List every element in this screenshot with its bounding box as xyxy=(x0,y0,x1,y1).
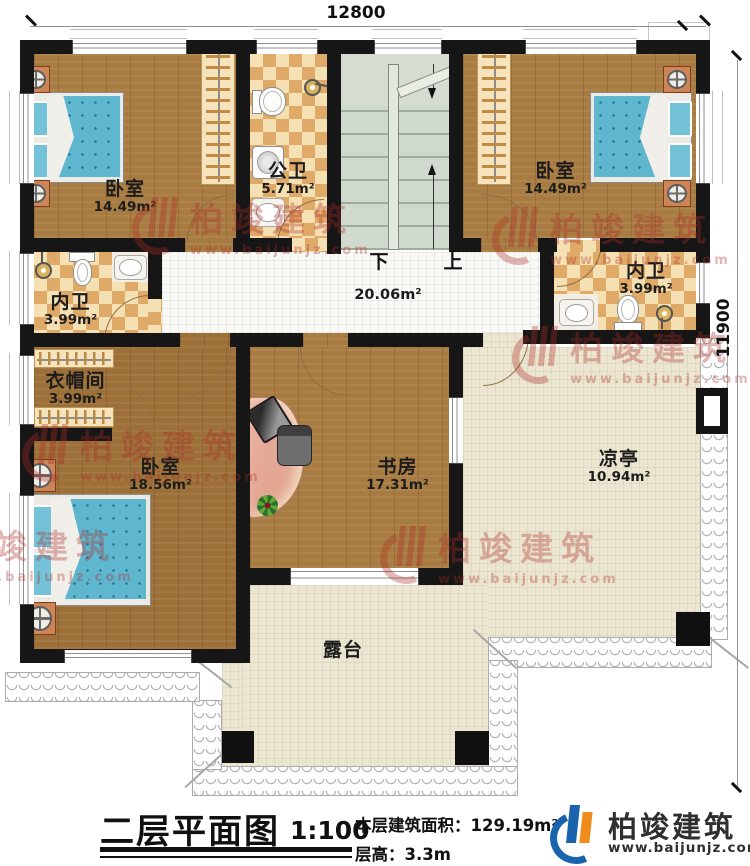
window xyxy=(374,40,442,54)
wall-int xyxy=(449,462,463,582)
terrace-column xyxy=(222,731,254,763)
room-area: 14.49m² xyxy=(508,182,603,196)
window-sill xyxy=(9,353,20,425)
room-area: 14.49m² xyxy=(75,200,175,214)
wall-int xyxy=(20,428,112,441)
window xyxy=(290,568,419,585)
terrace-floor-upper xyxy=(250,585,488,638)
wall-int xyxy=(20,238,185,252)
room-name: 卧室 xyxy=(508,162,603,182)
wall-int xyxy=(236,335,250,663)
window-sill xyxy=(9,251,20,325)
room-area: 3.99m² xyxy=(33,313,108,327)
wardrobe-bedroom-tr xyxy=(477,47,511,185)
floor-area-label: 本层建筑面积： xyxy=(355,816,471,835)
window xyxy=(20,253,34,325)
nightstand xyxy=(663,66,691,93)
wardrobe-bedroom-tl xyxy=(201,47,235,185)
company-logo-icon xyxy=(550,800,606,858)
window-sill xyxy=(9,91,20,184)
floor-plan-page: 柏竣建筑 www.baijunjz.com 柏竣建筑 www.baijunjz.… xyxy=(0,0,750,866)
cloakroom-rack-top xyxy=(34,349,114,368)
floor-height-line: 层高：3.3m xyxy=(355,841,451,865)
wall-int xyxy=(327,40,341,254)
shower-head-icon xyxy=(35,262,52,279)
label-bath-right: 内卫 3.99m² xyxy=(607,262,685,296)
window xyxy=(525,40,637,54)
shower-head-icon xyxy=(304,79,321,96)
room-name: 公卫 xyxy=(248,162,328,182)
stair-label-up: 上 xyxy=(440,247,466,274)
wall-int xyxy=(148,252,162,299)
room-area: 10.94m² xyxy=(558,470,680,484)
floor-area-line: 本层建筑面积：129.19m² xyxy=(355,812,559,836)
dimension-line-right xyxy=(737,60,738,788)
label-bedroom-bl: 卧室 18.56m² xyxy=(113,458,208,492)
label-pavilion: 凉亭 10.94m² xyxy=(558,450,680,484)
room-name: 书房 xyxy=(350,458,445,478)
room-name: 卧室 xyxy=(75,180,175,200)
shower-head-icon xyxy=(656,305,673,322)
toilet-icon xyxy=(259,87,286,116)
stair-label-down: 下 xyxy=(366,247,392,274)
window xyxy=(20,93,34,184)
window xyxy=(256,40,318,54)
doorway-bedroom-bl xyxy=(180,333,230,347)
window xyxy=(696,93,710,184)
terrace-column xyxy=(455,731,489,765)
dimension-top-value: 12800 xyxy=(320,3,392,23)
wall-pavilion-top xyxy=(540,330,696,344)
terrace-column xyxy=(676,612,710,646)
title-underline-thin xyxy=(100,856,352,858)
wall-int xyxy=(463,333,483,347)
room-name: 内卫 xyxy=(33,293,108,313)
label-study: 书房 17.31m² xyxy=(350,458,445,492)
wall-int xyxy=(233,238,292,252)
doorway-study xyxy=(303,333,348,347)
label-bedroom-tr: 卧室 14.49m² xyxy=(508,162,603,196)
stair-arrow-line-lower xyxy=(433,175,434,249)
room-name: 凉亭 xyxy=(558,450,680,470)
title-underline-thick xyxy=(100,847,352,852)
room-name: 露台 xyxy=(297,641,389,661)
wall-int xyxy=(230,333,303,347)
room-area: 5.71m² xyxy=(248,182,328,196)
window-sill xyxy=(712,91,723,184)
window-sill xyxy=(372,29,442,39)
room-area: 3.99m² xyxy=(28,392,123,406)
window-sill xyxy=(254,29,318,39)
shower-arm xyxy=(661,318,663,329)
room-area: 3.99m² xyxy=(607,282,685,296)
window xyxy=(696,262,710,304)
window xyxy=(449,397,463,464)
sink-icon xyxy=(251,198,285,227)
nightstand xyxy=(663,180,691,207)
terrace-tile-border xyxy=(192,766,518,796)
office-chair xyxy=(277,425,312,466)
doorway-bath-left xyxy=(148,299,162,335)
dimension-tick xyxy=(25,14,37,26)
pillow xyxy=(668,143,692,179)
label-bath-left: 内卫 3.99m² xyxy=(33,293,108,327)
wall-int xyxy=(348,333,463,347)
window-sill xyxy=(9,493,20,605)
wall-int xyxy=(540,238,554,338)
pillow xyxy=(668,101,692,137)
company-website: www.baijunjz.com xyxy=(608,840,750,856)
toilet-icon xyxy=(617,295,639,324)
stair-arrow-up-icon xyxy=(428,164,436,175)
wall-int xyxy=(538,238,557,252)
plan-title: 二层平面图 xyxy=(100,804,280,853)
room-name: 内卫 xyxy=(607,262,685,282)
bed-bedroom-bl xyxy=(23,494,151,606)
sink-icon xyxy=(559,299,594,326)
label-hall-area: 20.06m² xyxy=(348,288,428,303)
label-public-bath: 公卫 5.71m² xyxy=(248,162,328,196)
stair-arrow-down-icon xyxy=(428,88,436,99)
bed-bedroom-tr xyxy=(590,92,692,183)
floor-height-label: 层高： xyxy=(355,845,405,864)
plant-icon xyxy=(257,495,278,516)
wall-int xyxy=(449,40,463,252)
wall-int xyxy=(20,333,180,347)
toilet-icon xyxy=(73,259,92,286)
room-name: 衣帽间 xyxy=(28,372,123,392)
window xyxy=(20,495,34,605)
room-area: 18.56m² xyxy=(113,478,208,492)
label-cloakroom: 衣帽间 3.99m² xyxy=(28,372,123,406)
sink-icon xyxy=(114,255,147,280)
window-sill xyxy=(70,29,187,39)
window xyxy=(64,650,192,663)
wall-int xyxy=(236,40,250,252)
wall-int xyxy=(600,238,710,252)
dimension-right-value: 11900 xyxy=(714,293,734,363)
terrace-tile-border xyxy=(700,338,728,640)
pavilion-column xyxy=(696,388,728,434)
bed-bedroom-tl xyxy=(22,92,124,183)
window-sill xyxy=(523,29,637,39)
dimension-line-top xyxy=(30,26,706,27)
floor-area-value: 129.19m² xyxy=(471,816,559,835)
room-area: 17.31m² xyxy=(350,478,445,492)
room-name: 卧室 xyxy=(113,458,208,478)
pavilion-floor xyxy=(463,347,700,638)
label-bedroom-tl: 卧室 14.49m² xyxy=(75,180,175,214)
label-terrace: 露台 xyxy=(297,641,389,661)
terrace-tile-border xyxy=(5,672,200,702)
floor-height-value: 3.3m xyxy=(405,845,451,864)
room-area: 20.06m² xyxy=(348,288,428,303)
cloakroom-rack-bottom xyxy=(34,407,114,427)
window xyxy=(72,40,187,54)
